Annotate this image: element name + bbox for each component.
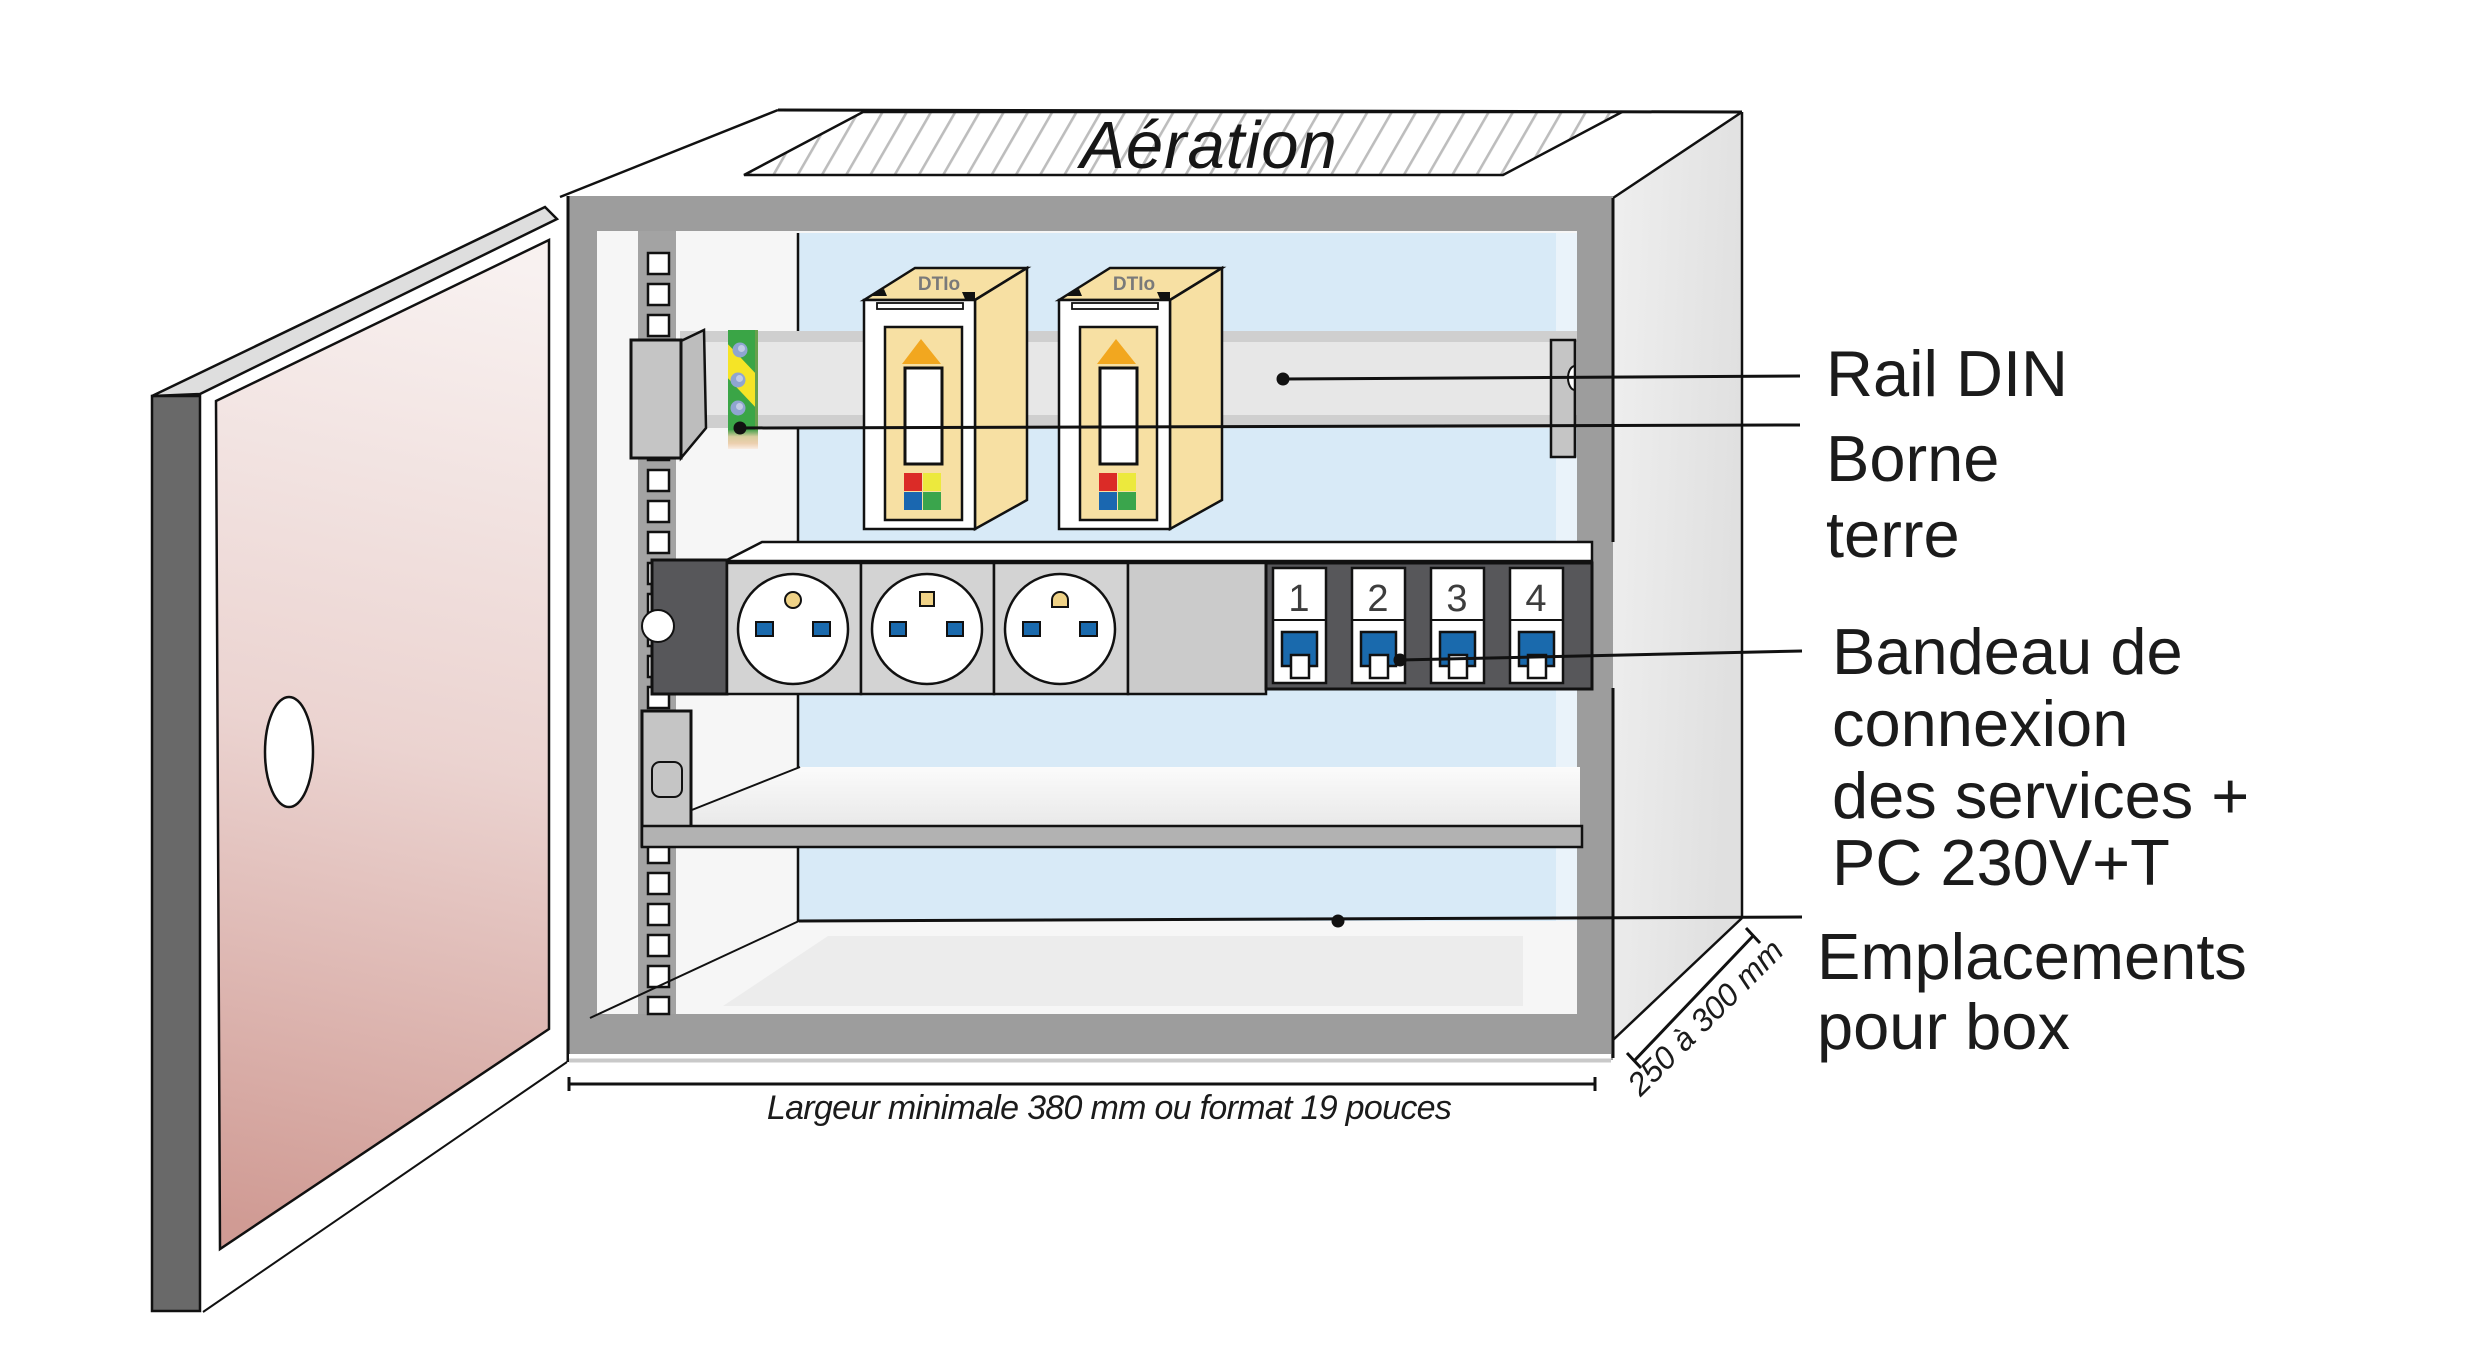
svg-text:Largeur minimale 380 mm ou for: Largeur minimale 380 mm ou format 19 pou…: [767, 1089, 1452, 1127]
svg-text:4: 4: [1525, 578, 1546, 620]
svg-text:pour box: pour box: [1817, 990, 2070, 1063]
svg-text:Emplacements: Emplacements: [1817, 920, 2247, 993]
svg-text:2: 2: [1367, 578, 1388, 620]
svg-text:Bandeau de: Bandeau de: [1832, 615, 2183, 688]
svg-text:des services +: des services +: [1832, 759, 2249, 832]
svg-text:Aération: Aération: [1076, 108, 1338, 183]
svg-text:Borne: Borne: [1826, 422, 1999, 495]
svg-text:DTIo: DTIo: [918, 274, 960, 295]
svg-text:PC 230V+T: PC 230V+T: [1832, 826, 2170, 899]
svg-text:terre: terre: [1826, 498, 1960, 571]
svg-text:1: 1: [1288, 578, 1309, 620]
svg-text:connexion: connexion: [1832, 687, 2128, 760]
svg-text:3: 3: [1446, 578, 1467, 620]
svg-text:Rail DIN: Rail DIN: [1826, 337, 2068, 410]
